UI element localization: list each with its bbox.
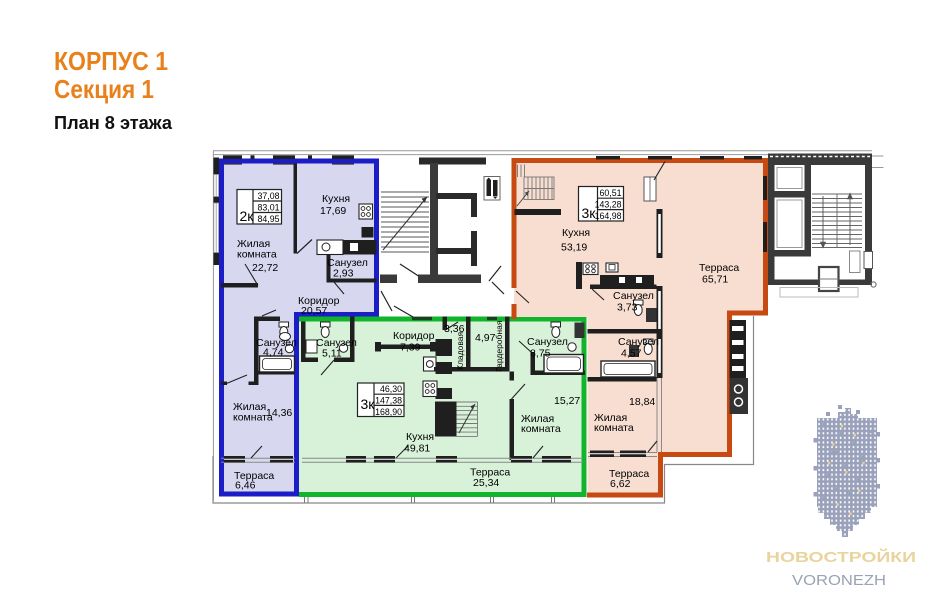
svg-text:Кухня: Кухня [406,431,434,443]
svg-text:14,36: 14,36 [266,407,292,419]
svg-text:комната: комната [521,423,561,435]
svg-text:15,27: 15,27 [554,395,580,407]
svg-text:84,95: 84,95 [257,214,279,224]
svg-text:18,84: 18,84 [629,396,655,408]
svg-text:37,08: 37,08 [257,191,279,201]
svg-text:60,51: 60,51 [599,188,621,198]
svg-text:Секция 1: Секция 1 [54,74,154,104]
svg-text:4,97: 4,97 [475,332,496,344]
svg-text:НОВОСТРОЙКИ: НОВОСТРОЙКИ [766,548,916,566]
svg-text:8,75: 8,75 [530,348,551,360]
svg-text:Терраса: Терраса [699,262,739,274]
svg-text:7,39: 7,39 [400,342,421,354]
svg-text:Коридор: Коридор [393,330,435,342]
svg-text:комната: комната [237,249,277,261]
svg-text:2,93: 2,93 [333,268,354,280]
svg-text:Кухня: Кухня [562,227,590,239]
svg-text:46,30: 46,30 [380,384,402,394]
svg-text:3,73: 3,73 [617,302,638,314]
svg-text:3к: 3к [361,396,376,412]
svg-text:2к: 2к [240,208,255,224]
svg-text:22,72: 22,72 [252,262,278,274]
svg-text:168,90: 168,90 [375,407,402,417]
svg-text:Санузел: Санузел [527,336,568,348]
svg-text:49,81: 49,81 [404,443,430,455]
svg-text:5,11: 5,11 [322,348,342,360]
svg-text:4,57: 4,57 [621,348,642,360]
svg-text:Гардеробная: Гардеробная [494,320,504,372]
svg-text:147,38: 147,38 [375,396,402,406]
svg-text:6,62: 6,62 [610,478,631,490]
svg-text:20,57: 20,57 [301,305,327,317]
svg-text:83,01: 83,01 [257,203,279,213]
svg-text:17,69: 17,69 [320,205,346,217]
svg-text:План 8 этажа: План 8 этажа [54,113,173,133]
svg-text:65,71: 65,71 [702,274,728,286]
svg-text:КОРПУС 1: КОРПУС 1 [54,46,168,76]
svg-text:Санузел: Санузел [618,336,659,348]
svg-text:4,74: 4,74 [263,347,284,359]
svg-text:53,19: 53,19 [561,242,587,254]
svg-text:Санузел: Санузел [613,290,654,302]
svg-text:143,28: 143,28 [595,200,622,210]
svg-text:25,34: 25,34 [473,477,499,489]
svg-text:комната: комната [594,422,634,434]
svg-text:VORONEZH: VORONEZH [792,573,886,589]
svg-text:164,98: 164,98 [595,211,622,221]
svg-text:Кухня: Кухня [322,193,350,205]
svg-text:6,46: 6,46 [235,480,256,492]
svg-text:Кладовая: Кладовая [455,332,465,370]
